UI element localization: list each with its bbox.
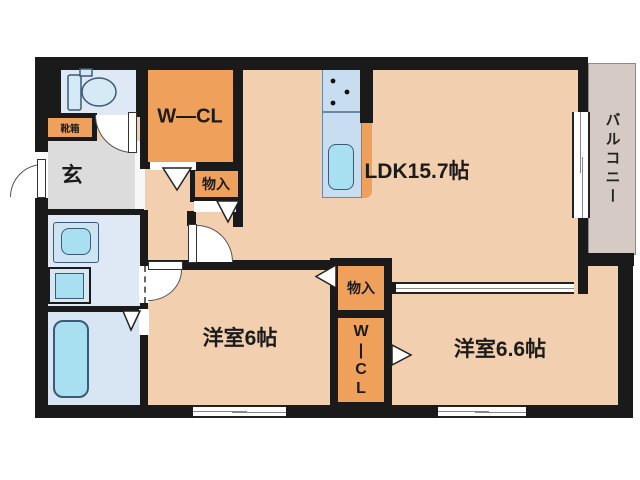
sliding-door-ldk-western2	[396, 282, 574, 294]
western1-label: 洋室6帖	[203, 322, 278, 352]
door-leaf-toilet	[128, 112, 137, 153]
kitchen-counter-divider	[322, 111, 362, 113]
floorplan-canvas: バルコニー 靴箱	[0, 0, 640, 480]
wall	[618, 262, 633, 418]
wicl-char: C	[355, 361, 367, 379]
window-western2	[438, 405, 526, 418]
entrance-label: 玄	[62, 159, 83, 189]
wicl-label: W | C L	[338, 318, 384, 402]
window-western1	[193, 405, 286, 418]
wall	[48, 306, 142, 312]
wcl-opening	[150, 162, 196, 170]
wicl-char: W	[353, 323, 368, 341]
shoebox: 靴箱	[48, 118, 92, 137]
wall-balcony-bottom	[588, 253, 634, 266]
wall-kitchen-stub	[360, 67, 373, 123]
kitchen-sink-icon	[328, 144, 354, 190]
ldk-label: LDK15.7帖	[364, 155, 469, 185]
wall	[35, 57, 588, 70]
storage2-label: 物入	[347, 278, 375, 298]
balcony-label: バルコニー	[602, 112, 623, 207]
wall	[48, 63, 61, 115]
wcl-label: W—CL	[157, 106, 223, 129]
shoebox-label: 靴箱	[60, 121, 79, 135]
storage1-opening	[194, 201, 236, 212]
western2-label: 洋室6.6帖	[454, 333, 546, 363]
storage1-label: 物入	[202, 174, 230, 194]
bathtub-icon	[53, 320, 89, 398]
sink-bowl-icon	[61, 228, 91, 255]
wall	[136, 57, 148, 117]
bathroom-opening	[139, 309, 149, 335]
wall	[140, 113, 148, 169]
door-leaf-western1	[148, 261, 183, 270]
door-leaf-entrance	[37, 159, 46, 198]
wall	[40, 209, 144, 215]
washing-machine-drum-icon	[55, 273, 84, 299]
door-leaf-hall-ldk	[188, 224, 197, 263]
window-balcony	[572, 112, 590, 218]
room-toilet	[60, 63, 136, 115]
wicl-char: L	[356, 380, 366, 398]
wall	[35, 57, 48, 418]
room-balcony: バルコニー	[588, 63, 636, 255]
wicl-char: |	[359, 342, 363, 360]
